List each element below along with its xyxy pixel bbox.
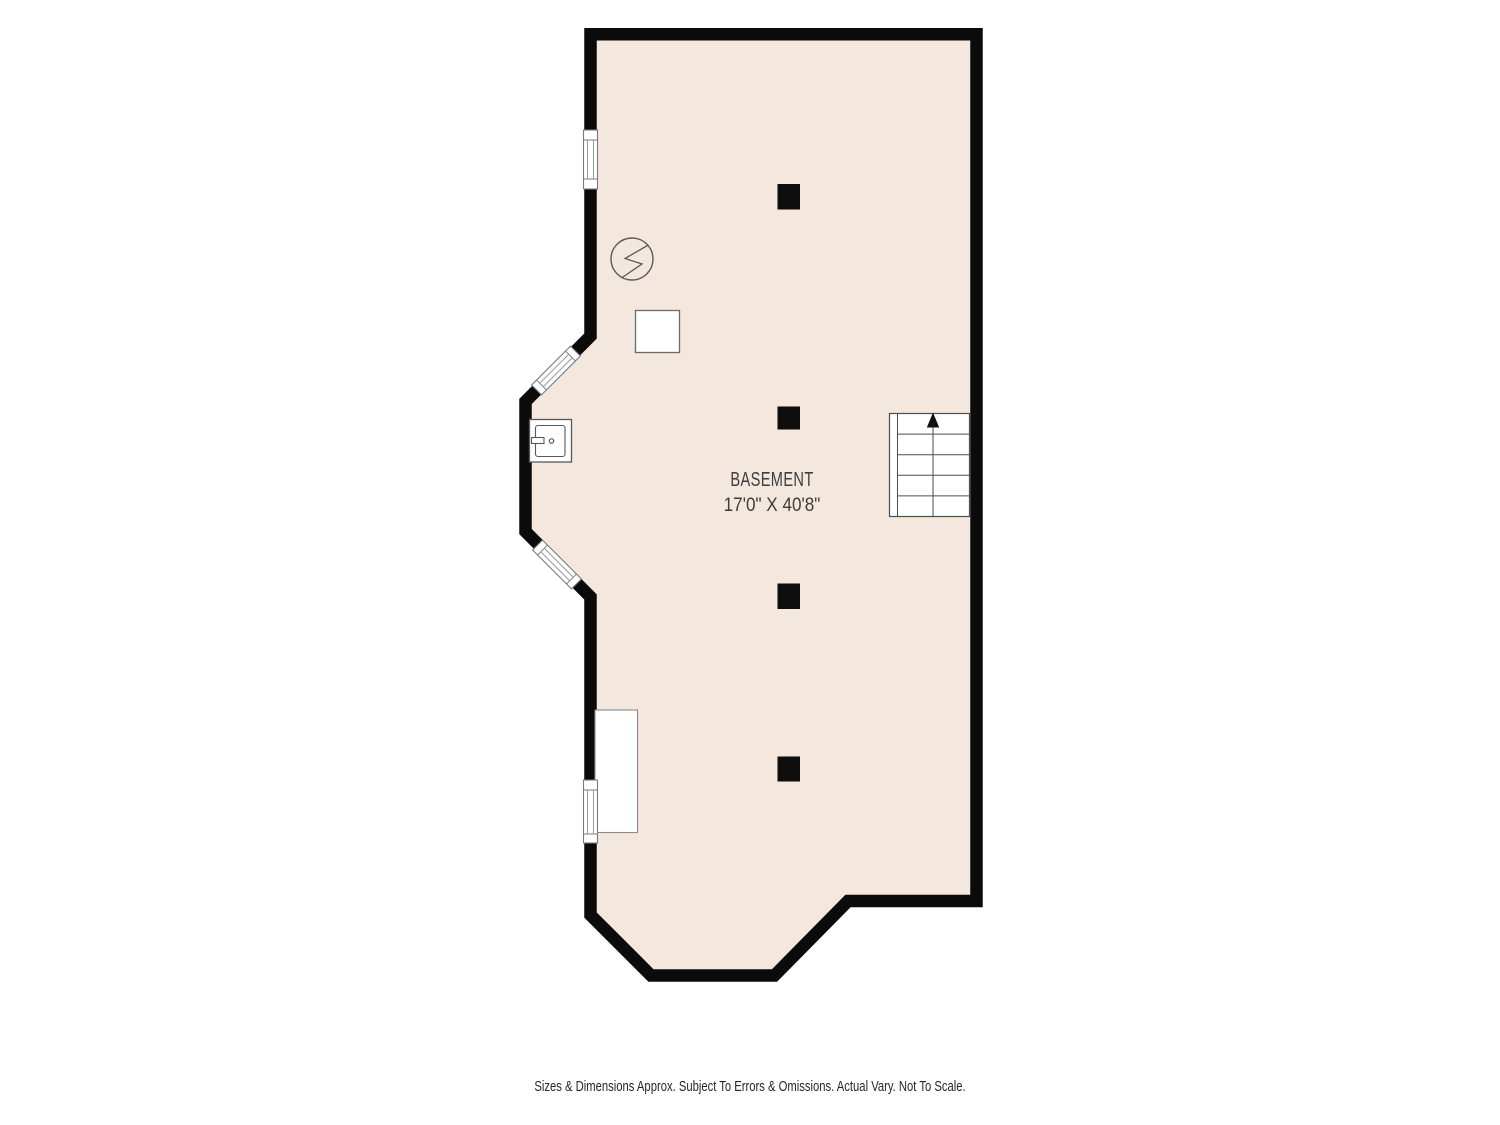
storage-area — [595, 710, 638, 833]
furnace-unit — [636, 311, 680, 353]
support-post-4 — [778, 757, 801, 782]
room-name: BASEMENT — [730, 468, 813, 493]
support-post-3 — [778, 584, 801, 610]
utility-sink-icon — [530, 420, 572, 463]
support-post-1 — [778, 184, 801, 210]
floorplan-drawing — [0, 0, 1500, 1125]
electrical-meter-icon — [611, 238, 653, 280]
disclaimer-text: Sizes & Dimensions Approx. Subject To Er… — [534, 1078, 965, 1096]
room-label: BASEMENT 17'0" X 40'8" — [715, 468, 829, 518]
window-top-left-icon — [584, 130, 598, 189]
room-dimensions: 17'0" X 40'8" — [721, 493, 824, 518]
faucet-handle — [532, 438, 545, 444]
floorplan-page: BASEMENT 17'0" X 40'8" Sizes & Dimension… — [0, 0, 1500, 1125]
window-bottom-left-icon — [584, 780, 598, 843]
staircase-icon — [890, 413, 970, 517]
support-post-2 — [778, 407, 801, 430]
